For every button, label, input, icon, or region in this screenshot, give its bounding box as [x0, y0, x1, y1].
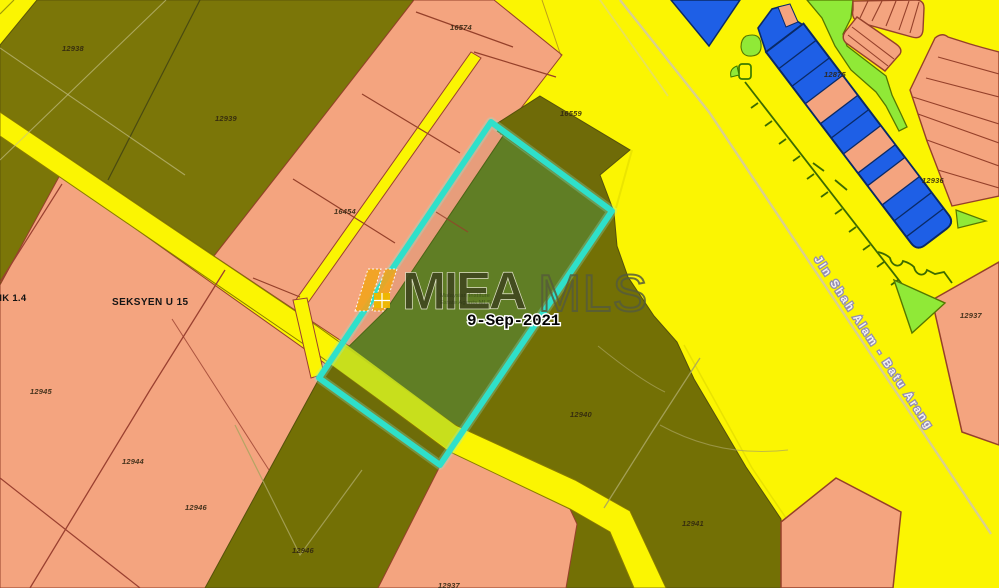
svg-text:12946: 12946 [292, 546, 314, 555]
svg-text:12937: 12937 [438, 581, 460, 588]
svg-text:12936: 12936 [922, 176, 944, 185]
svg-text:Estate Agents MLS: Estate Agents MLS [440, 300, 491, 306]
svg-text:12941: 12941 [682, 519, 704, 528]
svg-text:12939: 12939 [215, 114, 237, 123]
svg-text:12938: 12938 [62, 44, 84, 53]
svg-text:12940: 12940 [570, 410, 592, 419]
svg-text:Malaysian Institute: Malaysian Institute [440, 293, 490, 299]
svg-text:12937: 12937 [960, 311, 982, 320]
svg-text:12945: 12945 [30, 387, 52, 396]
svg-text:16574: 16574 [450, 23, 472, 32]
svg-text:SEKSYEN U 15: SEKSYEN U 15 [112, 297, 189, 308]
svg-text:16559: 16559 [560, 109, 582, 118]
svg-text:16454: 16454 [334, 207, 356, 216]
svg-text:12946: 12946 [185, 503, 207, 512]
svg-text:MK 1.4: MK 1.4 [0, 293, 27, 304]
svg-text:9-Sep-2021: 9-Sep-2021 [467, 312, 560, 330]
svg-text:12944: 12944 [122, 457, 144, 466]
svg-text:12875: 12875 [824, 70, 846, 79]
